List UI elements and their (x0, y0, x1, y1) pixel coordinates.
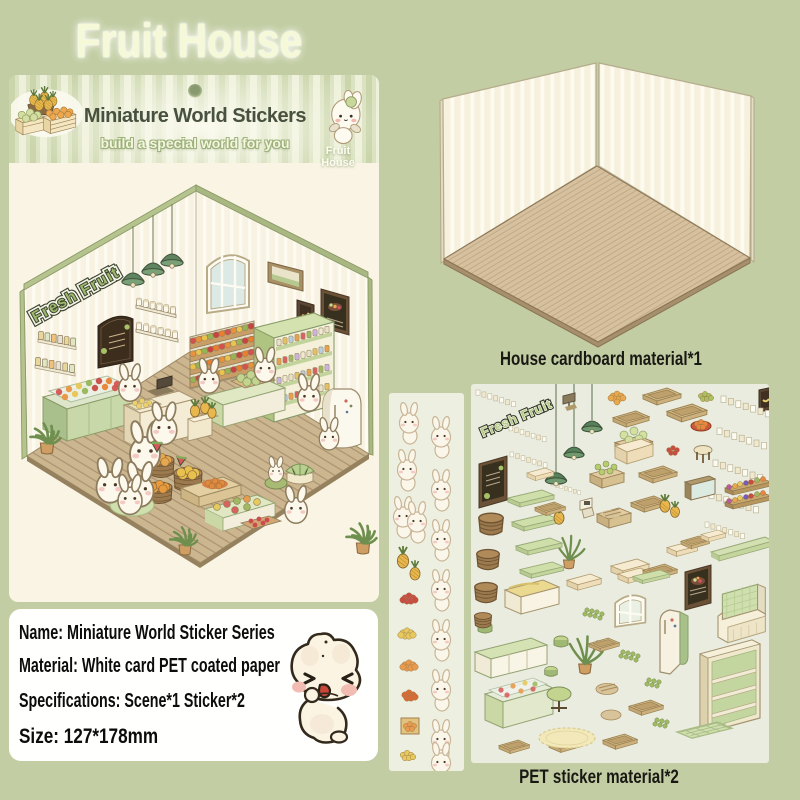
svg-text:Fresh Fruit: Fresh Fruit (479, 397, 555, 440)
